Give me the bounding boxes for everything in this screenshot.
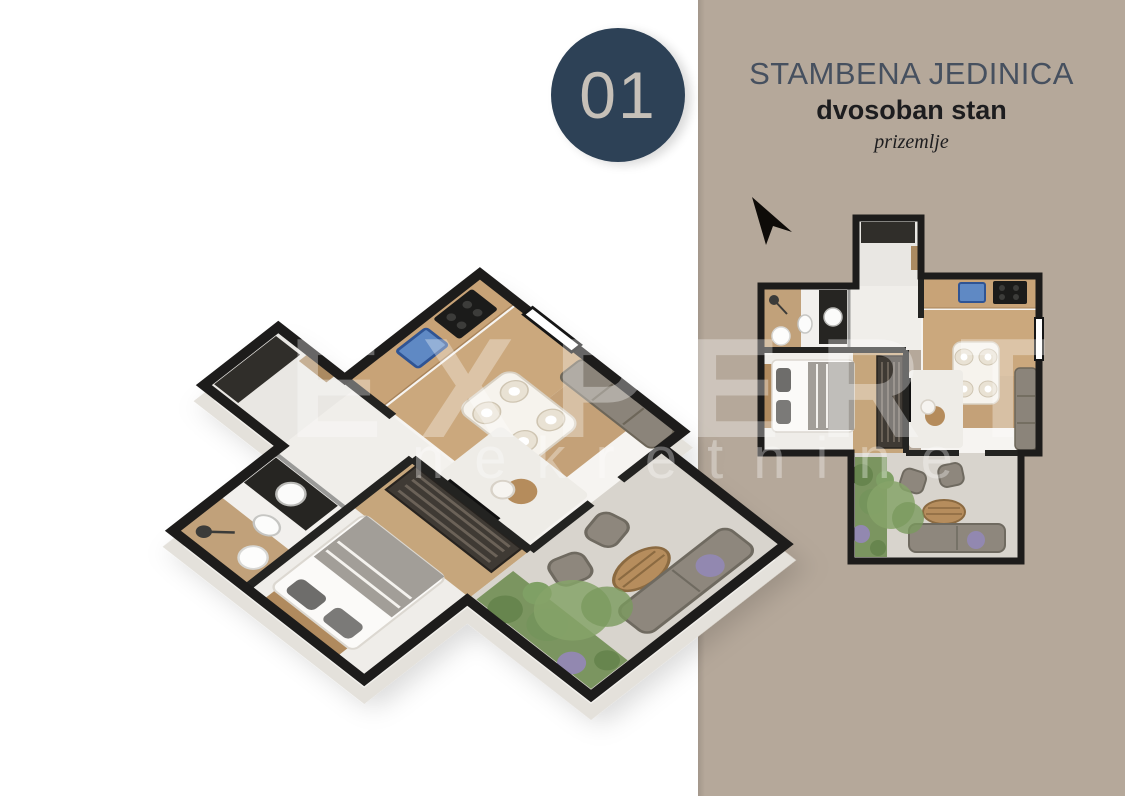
floorplan-2d [761,218,1043,561]
unit-number-badge: 01 [551,28,685,162]
unit-number: 01 [579,57,656,133]
apartment-render-3d [95,218,811,776]
